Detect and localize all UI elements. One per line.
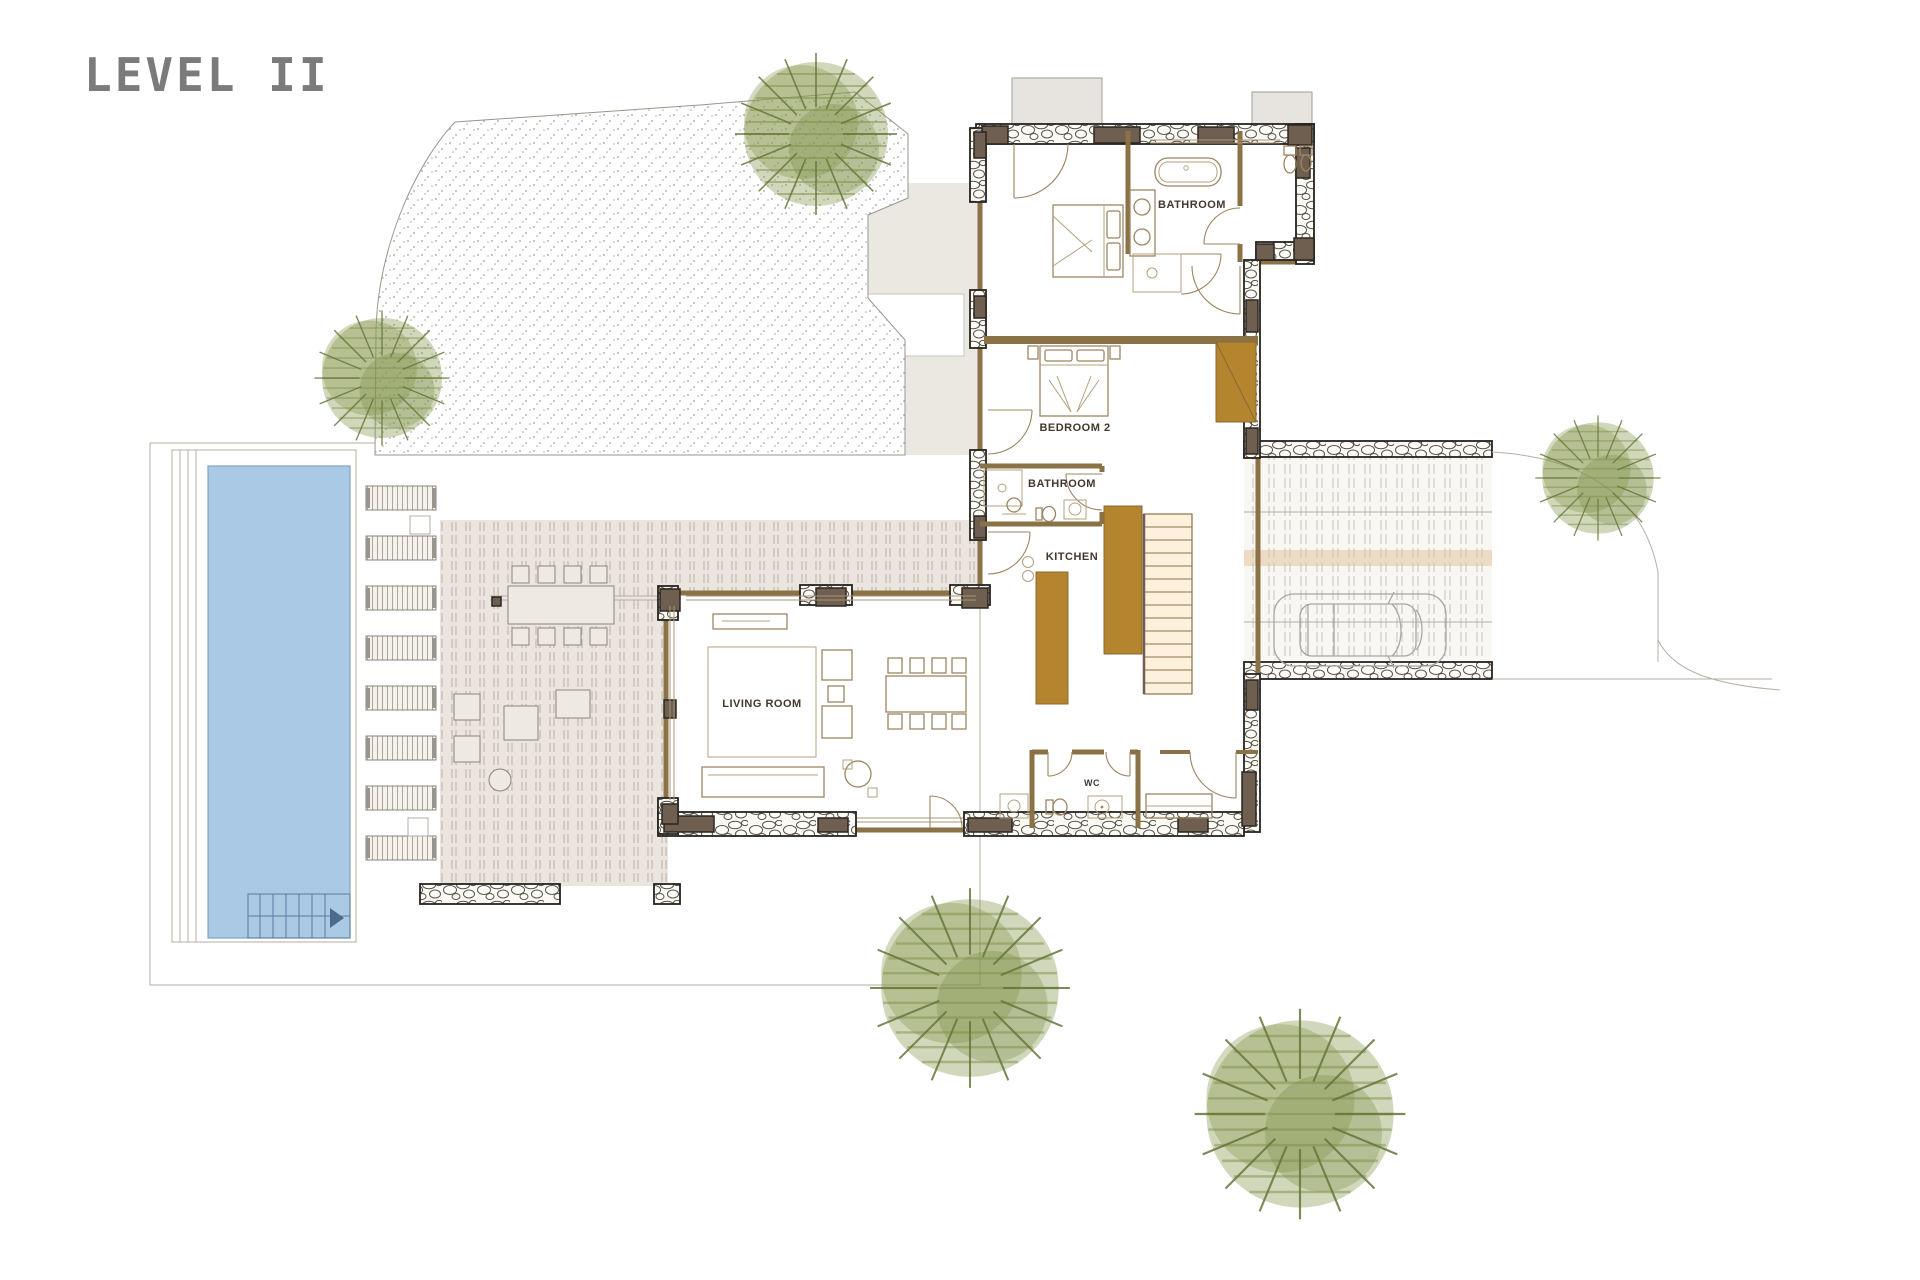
stool <box>1023 571 1034 582</box>
outdoor-chair <box>512 628 529 645</box>
round-table <box>845 761 871 787</box>
pillow <box>1077 350 1104 361</box>
toilet <box>1043 507 1056 522</box>
bedroom-1 <box>1053 205 1123 277</box>
chair <box>932 658 946 673</box>
door-wc <box>1106 752 1130 776</box>
staircase <box>1144 514 1192 694</box>
door-bedroom1 <box>1014 144 1068 198</box>
outdoor-low-table <box>504 706 538 740</box>
chair <box>932 714 946 729</box>
outdoor-chair <box>538 566 555 583</box>
door-bedroom2 <box>988 410 1032 454</box>
outdoor-seat <box>454 736 480 762</box>
sink <box>1134 199 1150 215</box>
dining-set <box>886 658 966 729</box>
sliding-door-glass <box>857 818 963 822</box>
room-label-bathroom-ensuite: BATHROOM <box>1028 478 1096 490</box>
door-terrace <box>930 796 962 828</box>
outdoor-chair <box>590 566 607 583</box>
door-wc <box>1048 752 1072 776</box>
sun-lounger <box>366 786 436 810</box>
driveway <box>1244 441 1780 690</box>
utility-sink <box>1008 800 1020 812</box>
driveway-stone-wall <box>1244 441 1492 457</box>
chair <box>888 714 902 729</box>
outdoor-round-table <box>489 769 511 791</box>
outdoor-chair <box>590 628 607 645</box>
tree <box>1535 415 1660 540</box>
dining-table <box>886 676 966 712</box>
kitchen-counter <box>1104 506 1142 654</box>
tree <box>735 53 897 215</box>
side-table <box>410 516 430 534</box>
sun-lounger <box>366 486 436 510</box>
sun-lounger <box>366 686 436 710</box>
stool <box>1023 557 1034 568</box>
pillow <box>1107 211 1120 238</box>
armchair <box>822 650 852 680</box>
door-kitchen <box>988 532 1030 574</box>
armchair <box>822 706 852 738</box>
pillow <box>1107 243 1120 270</box>
sun-lounger <box>366 736 436 760</box>
side-table <box>408 818 428 836</box>
page-title: LEVEL II <box>84 48 330 102</box>
kitchen-island <box>1036 572 1068 704</box>
garden-stone-wall <box>654 884 680 904</box>
tree <box>870 888 1070 1088</box>
vanity-counter <box>1130 190 1155 256</box>
room-label-wc: WC <box>1084 778 1100 788</box>
nightstand <box>1110 346 1120 359</box>
bedroom-2 <box>1028 342 1256 422</box>
door-entry <box>1190 752 1236 798</box>
pool-water <box>208 466 350 938</box>
room-label-bedroom2: BEDROOM 2 <box>1039 422 1110 434</box>
sink <box>1007 498 1021 512</box>
sun-lounger <box>366 536 436 560</box>
toilet <box>1284 155 1296 173</box>
floor-plan-drawing: BATHROOM BEDROOM 2 BATHROOM KITCHEN LIVI… <box>0 0 1920 1280</box>
garden-stone-wall <box>420 884 560 904</box>
kitchen <box>1023 506 1193 704</box>
shower <box>984 470 1022 506</box>
chair <box>910 658 924 673</box>
door-shower <box>1181 254 1221 294</box>
chair <box>952 658 966 673</box>
outdoor-chair <box>564 566 581 583</box>
bed <box>1053 205 1123 277</box>
outdoor-chair <box>564 628 581 645</box>
room-label-bathroom-main: BATHROOM <box>1158 199 1226 211</box>
pillow <box>1045 350 1072 361</box>
sofa <box>702 767 824 797</box>
outdoor-chair <box>512 566 529 583</box>
outdoor-seat <box>556 690 590 718</box>
nightstand <box>1028 346 1038 359</box>
driveway-stone-wall <box>1244 662 1492 679</box>
outdoor-seat <box>454 694 480 720</box>
room-label-living-room: LIVING ROOM <box>722 698 801 710</box>
bidet <box>1069 503 1081 515</box>
tree <box>1195 1009 1406 1220</box>
sink <box>1134 229 1150 245</box>
outdoor-chair <box>538 628 555 645</box>
outdoor-dining-table <box>508 586 614 624</box>
sun-lounger <box>366 636 436 660</box>
room-label-kitchen: KITCHEN <box>1046 551 1098 563</box>
sun-lounger <box>366 836 436 860</box>
sun-loungers <box>366 486 436 860</box>
deck-post <box>492 597 501 606</box>
swimming-pool <box>172 450 356 942</box>
sun-lounger <box>366 586 436 610</box>
tree <box>315 311 450 446</box>
chair <box>952 714 966 729</box>
bathroom-main <box>1130 146 1312 292</box>
floor-plan-page: BATHROOM BEDROOM 2 BATHROOM KITCHEN LIVI… <box>0 0 1920 1280</box>
chair <box>888 658 902 673</box>
chair <box>910 714 924 729</box>
side-table <box>828 686 844 702</box>
door-closet <box>1204 208 1240 244</box>
